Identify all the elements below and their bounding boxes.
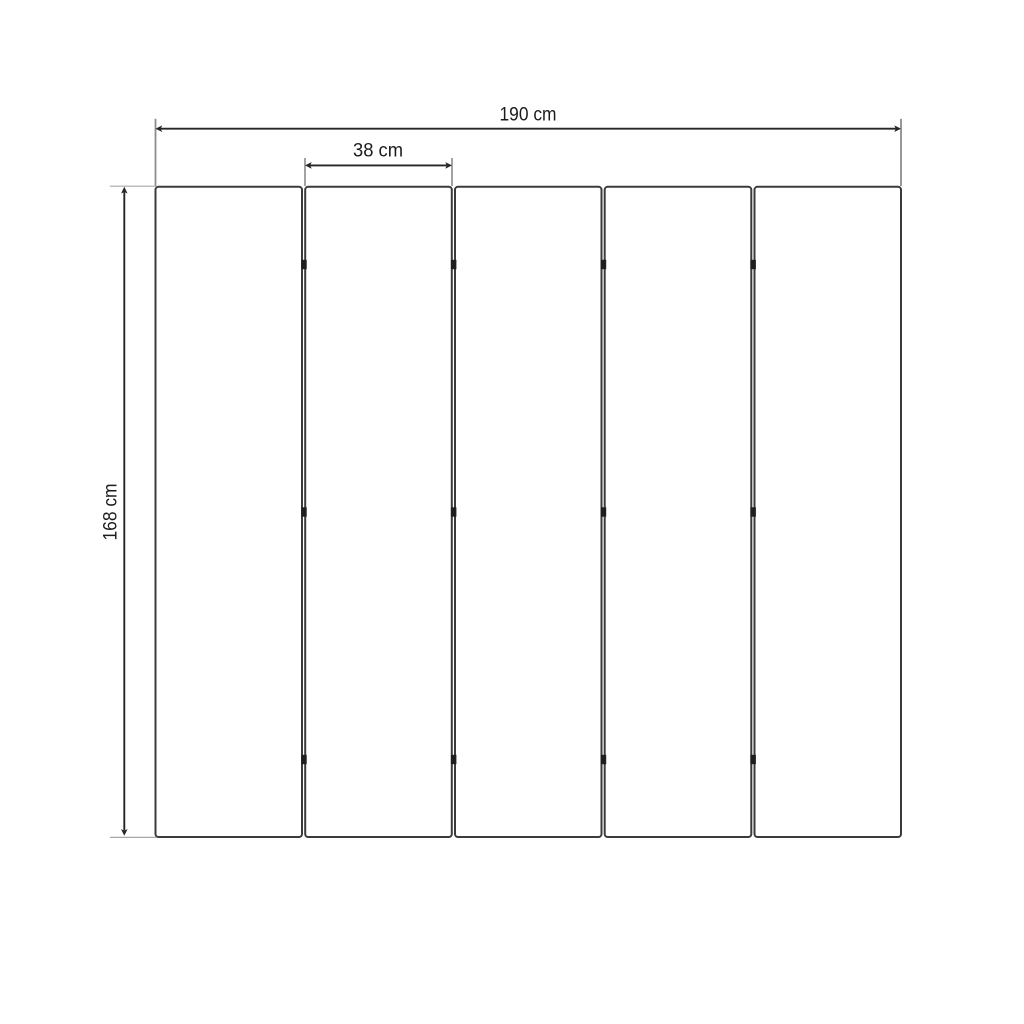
svg-text:38 cm: 38 cm: [353, 139, 403, 161]
svg-text:168 cm: 168 cm: [100, 484, 122, 541]
svg-text:190 cm: 190 cm: [500, 103, 557, 125]
